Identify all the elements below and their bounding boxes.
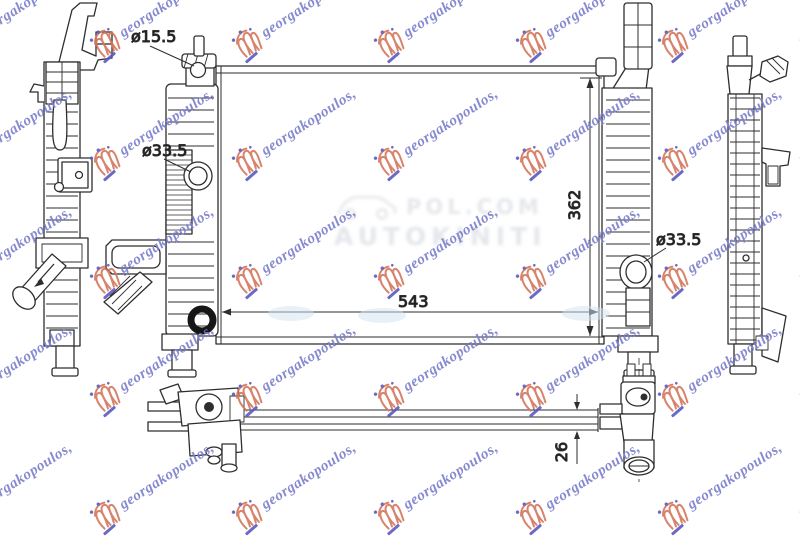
bottom-right-fitting xyxy=(600,364,655,475)
georgakopoulos-logo-icon xyxy=(512,495,551,536)
right-tank xyxy=(596,3,658,377)
dim-label-core-width: 543 xyxy=(398,292,429,311)
bottom-view-drawing xyxy=(148,358,655,482)
dim-label-core-height: 362 xyxy=(565,190,584,221)
georgakopoulos-logo-icon xyxy=(228,495,267,536)
left-side-view-drawing xyxy=(8,3,112,376)
bottom-left-fitting xyxy=(148,384,244,472)
right-side-view-drawing xyxy=(727,36,790,374)
radiator-technical-drawing-page: { "dimensions": { "neck": "ø15.5", "left… xyxy=(0,0,800,485)
georgakopoulos-logo-icon xyxy=(86,495,125,536)
dim-label-core-thickness: 26 xyxy=(552,442,571,462)
radiator-drawing: 543 362 26 ø15.5 ø33.5 ø33.5 xyxy=(0,0,800,485)
georgakopoulos-logo-icon xyxy=(654,495,693,536)
dim-label-left-port-diameter: ø33.5 xyxy=(142,141,187,160)
left-tank xyxy=(104,36,218,377)
dim-label-right-port-diameter: ø33.5 xyxy=(656,230,701,249)
georgakopoulos-logo-icon xyxy=(796,495,800,536)
dim-label-neck-diameter: ø15.5 xyxy=(131,27,176,46)
georgakopoulos-logo-icon xyxy=(370,495,409,536)
